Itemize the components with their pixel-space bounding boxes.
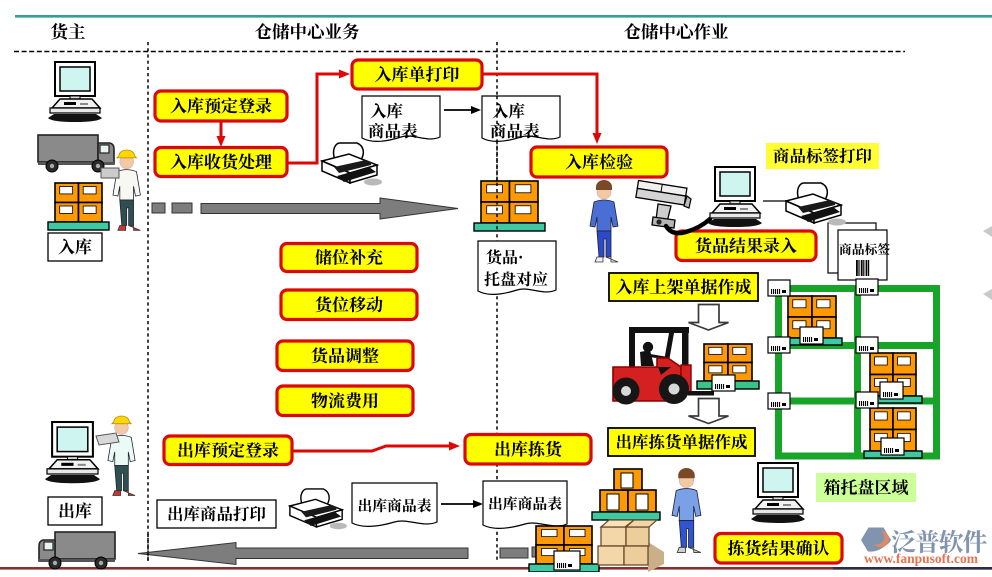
svg-text:www.fanpusoft.com: www.fanpusoft.com xyxy=(864,551,979,566)
